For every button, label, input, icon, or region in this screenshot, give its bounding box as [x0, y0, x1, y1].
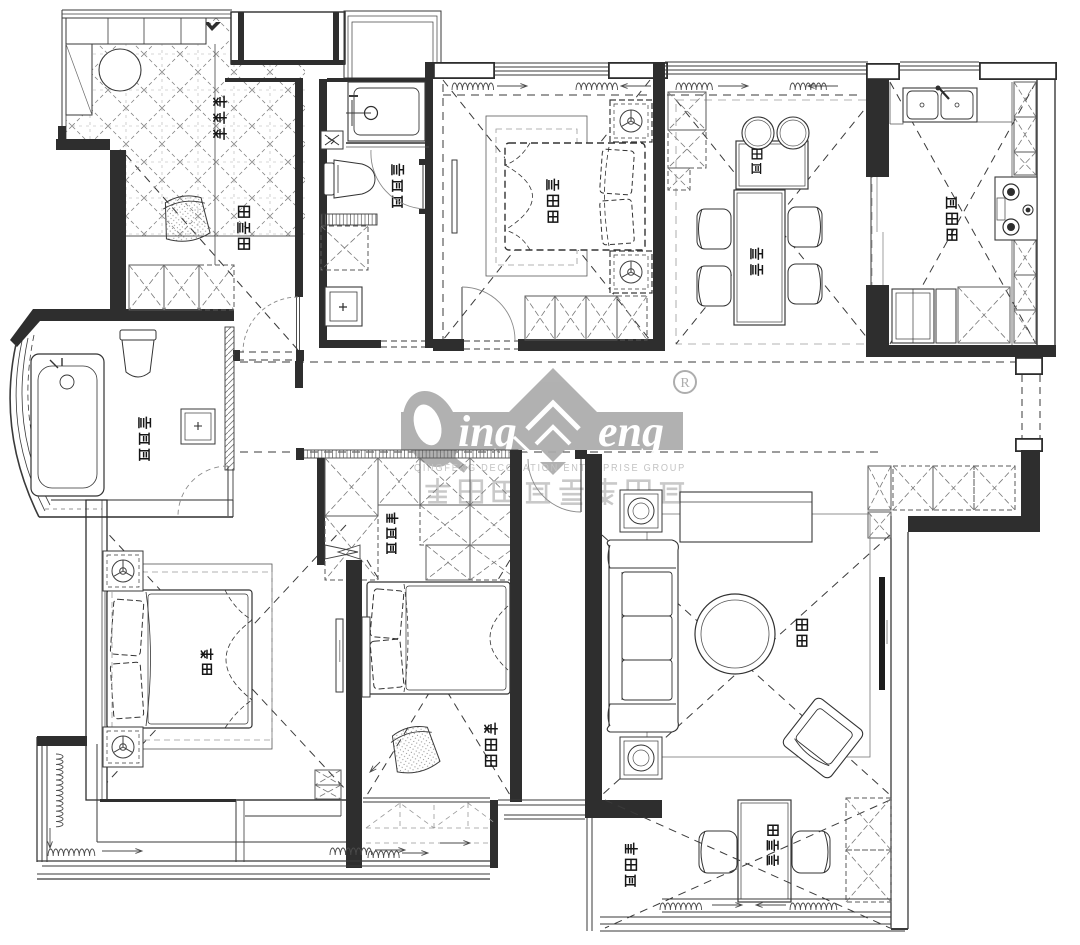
svg-text:R: R	[680, 376, 690, 391]
svg-text:eng: eng	[598, 407, 664, 456]
